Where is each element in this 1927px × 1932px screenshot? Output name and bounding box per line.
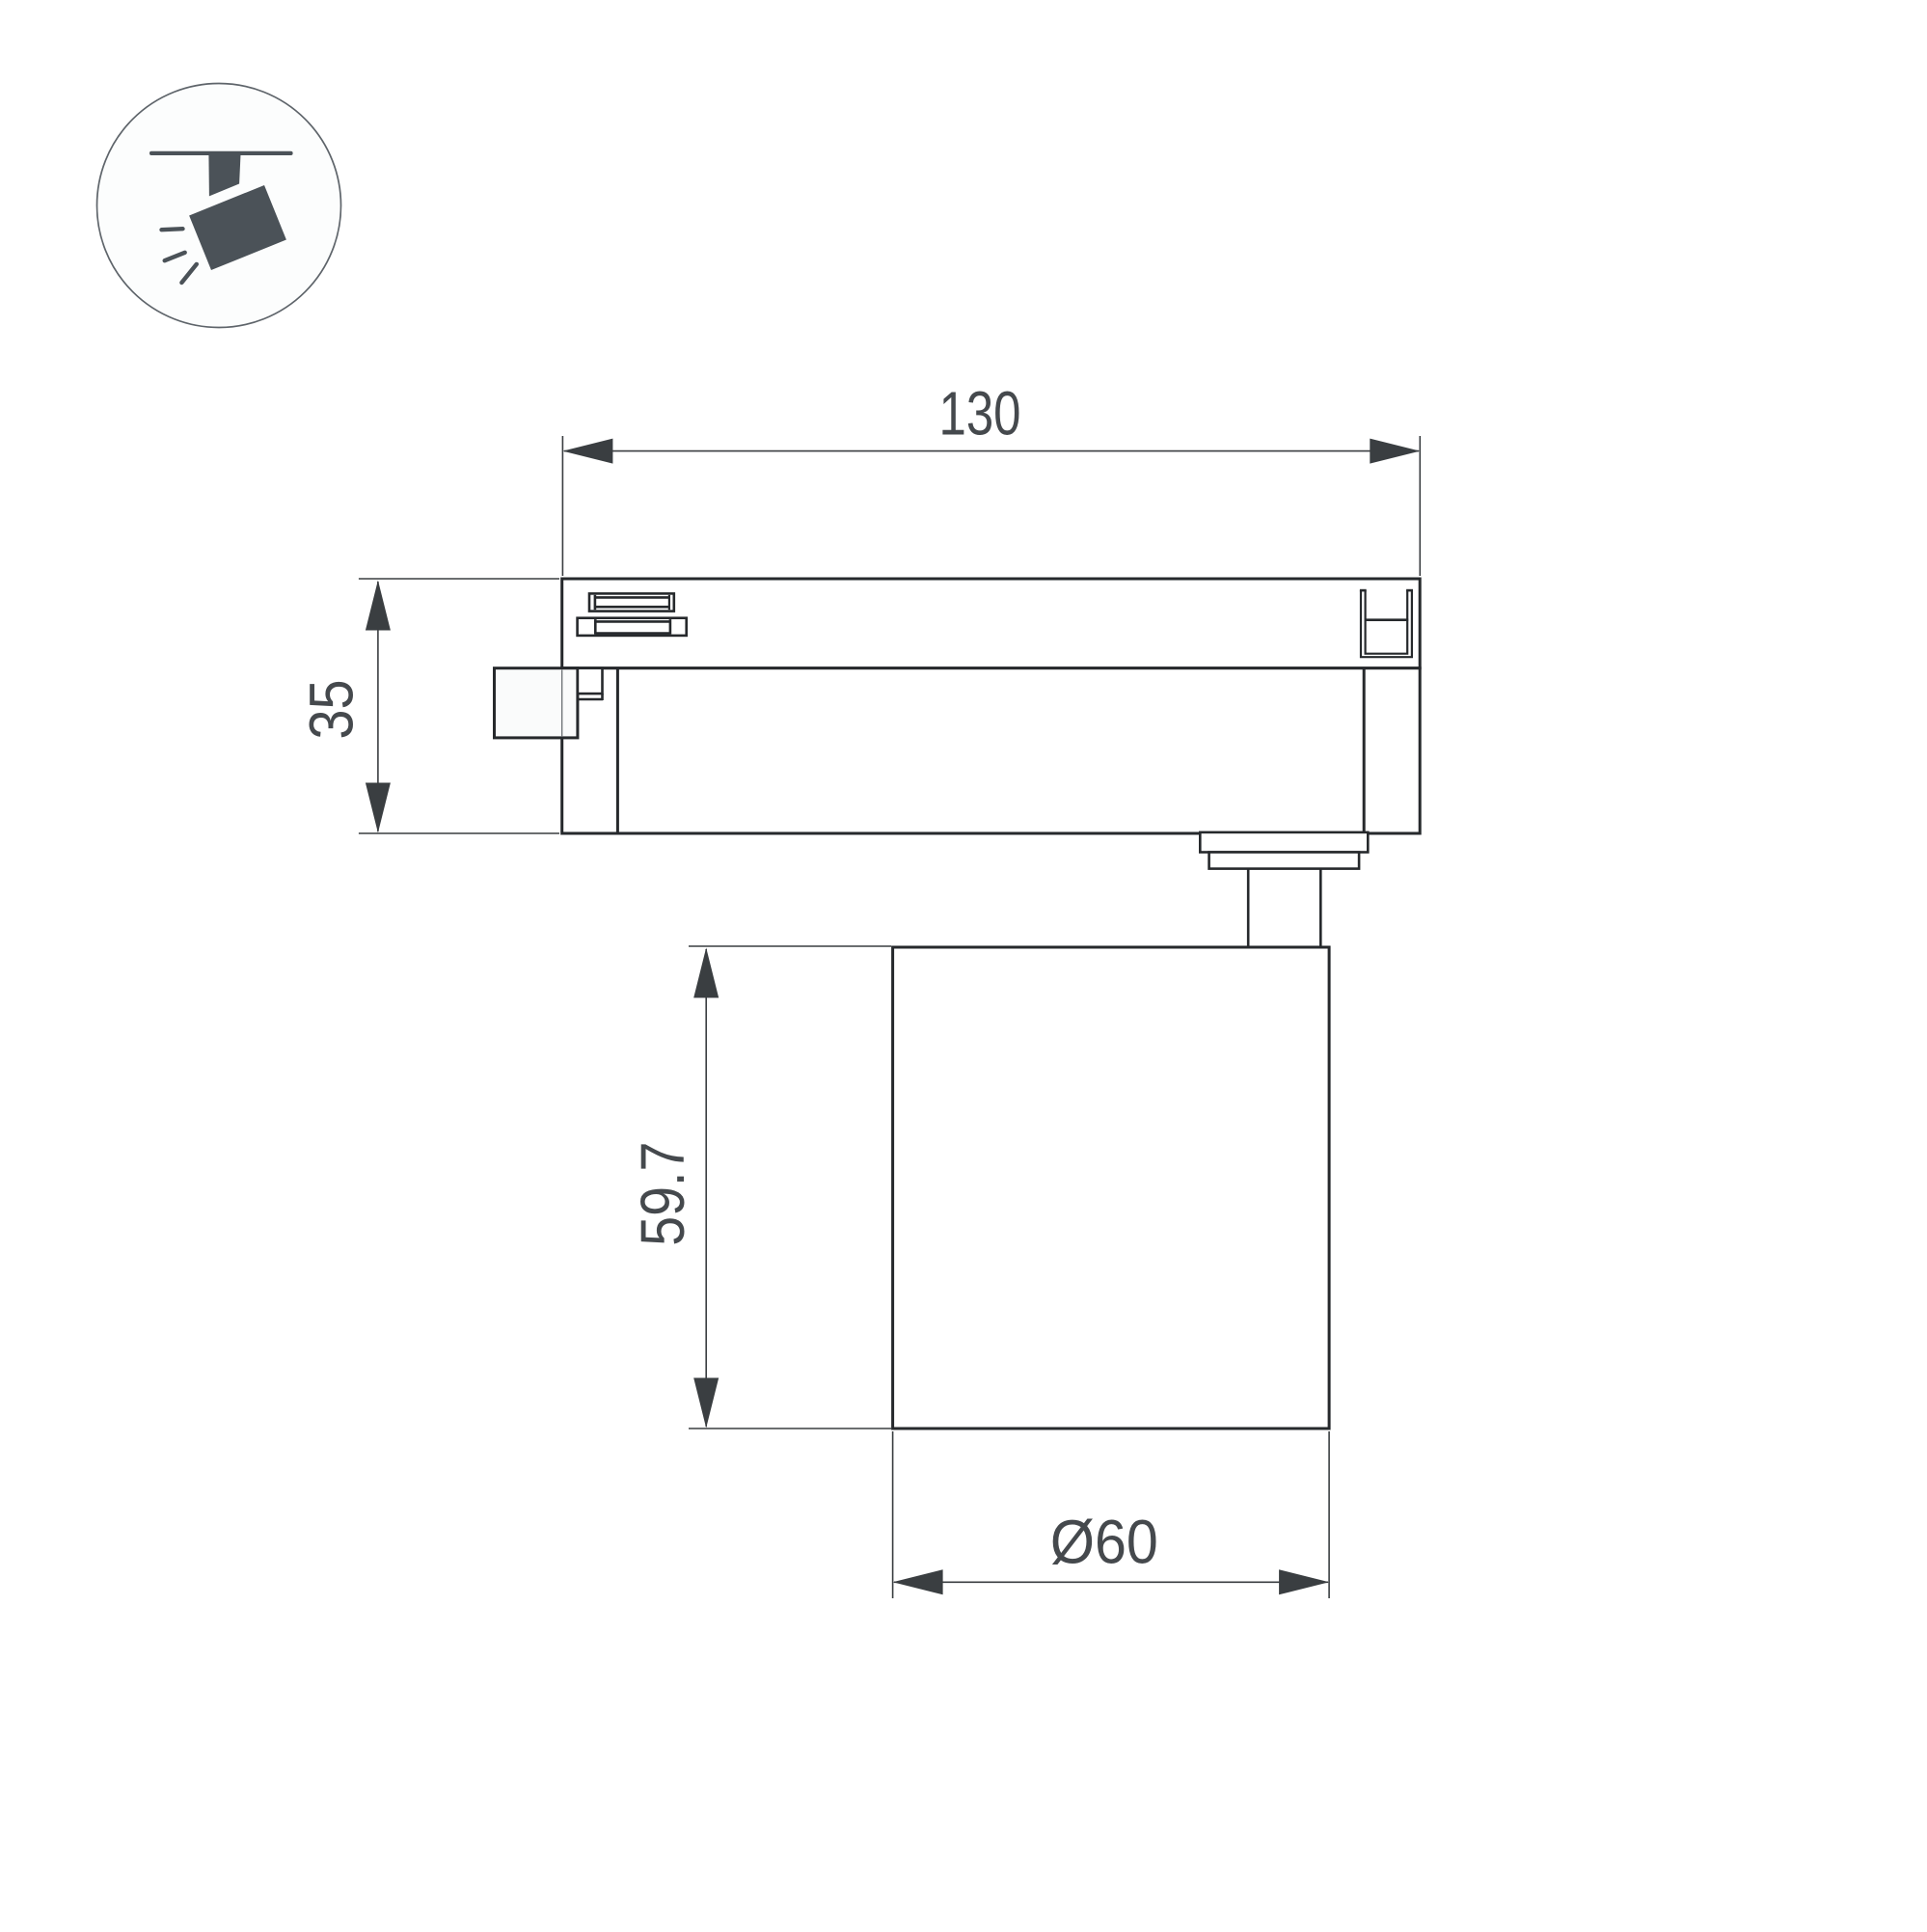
svg-text:59.7: 59.7 xyxy=(628,1142,697,1246)
svg-text:Ø60: Ø60 xyxy=(1050,1507,1158,1576)
svg-text:35: 35 xyxy=(297,680,366,740)
svg-text:130: 130 xyxy=(939,379,1021,449)
